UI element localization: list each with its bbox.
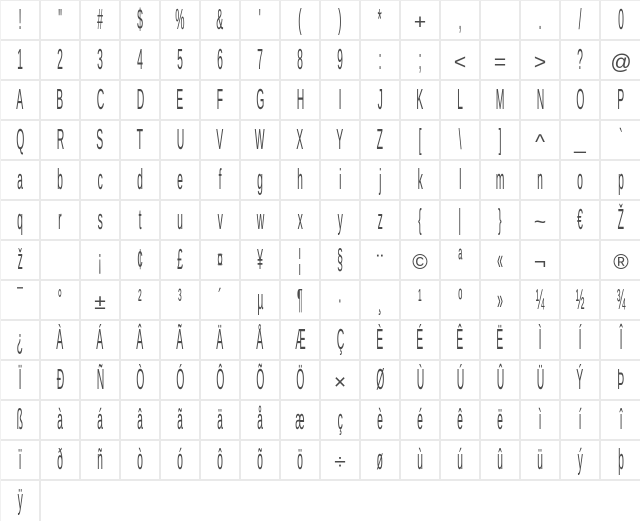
glyph-cell[interactable]: P	[601, 81, 640, 121]
glyph: ~	[534, 203, 546, 242]
glyph-cell[interactable]: ¾	[601, 281, 640, 321]
glyph: )	[338, 1, 341, 40]
glyph-cell[interactable]: ê	[441, 401, 481, 441]
glyph-cell[interactable]: ô	[201, 441, 241, 481]
glyph-cell[interactable]: æ	[281, 401, 321, 441]
glyph: §	[337, 241, 343, 280]
glyph-cell[interactable]: û	[481, 441, 521, 481]
glyph: P	[618, 81, 625, 120]
glyph: þ	[618, 441, 624, 480]
glyph: á	[97, 401, 103, 440]
glyph: ª	[458, 241, 462, 280]
glyph-cell[interactable]: J	[361, 81, 401, 121]
glyph-cell[interactable]: c	[81, 161, 121, 201]
glyph: û	[497, 441, 503, 480]
glyph-cell[interactable]: d	[121, 161, 161, 201]
glyph-cell[interactable]: Ð	[41, 361, 81, 401]
glyph-cell[interactable]: ö	[281, 441, 321, 481]
glyph-cell[interactable]: Û	[481, 361, 521, 401]
empty-cell	[281, 481, 321, 521]
glyph-cell[interactable]: ¿	[1, 321, 41, 361]
glyph-cell[interactable]: %	[161, 1, 201, 41]
glyph: ¦	[299, 241, 302, 280]
glyph-cell[interactable]: ¢	[121, 241, 161, 281]
glyph-cell[interactable]: é	[401, 401, 441, 441]
glyph-cell[interactable]: 7	[241, 41, 281, 81]
glyph-cell[interactable]: á	[81, 401, 121, 441]
glyph-cell[interactable]: ÷	[321, 441, 361, 481]
glyph-cell[interactable]: ¤	[201, 241, 241, 281]
glyph: c	[97, 161, 102, 200]
glyph: ß	[17, 401, 23, 440]
glyph-cell[interactable]: 0	[601, 1, 640, 41]
glyph-cell[interactable]: T	[121, 121, 161, 161]
glyph-cell[interactable]: \	[441, 121, 481, 161]
glyph-cell[interactable]: E	[161, 81, 201, 121]
glyph-cell[interactable]: 4	[121, 41, 161, 81]
glyph-cell[interactable]: b	[41, 161, 81, 201]
glyph: r	[58, 201, 61, 240]
glyph-cell[interactable]: ä	[201, 401, 241, 441]
glyph: I	[339, 81, 342, 120]
glyph-cell[interactable]: å	[241, 401, 281, 441]
glyph-cell[interactable]: y	[321, 201, 361, 241]
glyph-cell[interactable]: K	[401, 81, 441, 121]
glyph-cell[interactable]: !	[1, 1, 41, 41]
glyph-cell[interactable]: w	[241, 201, 281, 241]
glyph: {	[418, 201, 421, 240]
glyph: s	[97, 201, 102, 240]
glyph: 7	[257, 41, 263, 80]
glyph-cell[interactable]: ×	[321, 361, 361, 401]
glyph-cell[interactable]: «	[481, 241, 521, 281]
glyph-cell[interactable]: Ã	[161, 321, 201, 361]
glyph: ¥	[257, 241, 263, 280]
glyph-cell[interactable]: 2	[41, 41, 81, 81]
glyph: E	[177, 81, 184, 120]
glyph-cell[interactable]: Ø	[361, 361, 401, 401]
glyph: &	[217, 1, 224, 40]
glyph-cell[interactable]: ß	[1, 401, 41, 441]
glyph-cell[interactable]: Y	[321, 121, 361, 161]
glyph: H	[296, 81, 304, 120]
glyph: v	[217, 201, 222, 240]
glyph-cell[interactable]: è	[361, 401, 401, 441]
glyph-cell[interactable]: 5	[161, 41, 201, 81]
glyph: ,	[459, 1, 462, 40]
glyph: '	[259, 1, 261, 40]
glyph-cell[interactable]: 6	[201, 41, 241, 81]
glyph-cell[interactable]: ë	[481, 401, 521, 441]
glyph: ù	[417, 441, 423, 480]
glyph-cell[interactable]: O	[561, 81, 601, 121]
glyph-cell[interactable]: ¦	[281, 241, 321, 281]
glyph-cell[interactable]: ;	[401, 41, 441, 81]
glyph: Ë	[497, 321, 504, 360]
glyph-cell[interactable]: x	[281, 201, 321, 241]
glyph-cell[interactable]: ø	[361, 441, 401, 481]
glyph-cell[interactable]: É	[401, 321, 441, 361]
glyph: ¡	[98, 241, 101, 280]
glyph-cell[interactable]: M	[481, 81, 521, 121]
glyph-cell[interactable]: Ì	[521, 321, 561, 361]
glyph-cell[interactable]: r	[41, 201, 81, 241]
glyph-cell[interactable]: X	[281, 121, 321, 161]
glyph-cell[interactable]: õ	[241, 441, 281, 481]
glyph-cell[interactable]: i	[321, 161, 361, 201]
glyph: $	[137, 1, 143, 40]
glyph-cell[interactable]: î	[601, 401, 640, 441]
glyph: Y	[337, 121, 344, 160]
glyph-cell[interactable]: Ä	[201, 321, 241, 361]
glyph-cell[interactable]: v	[201, 201, 241, 241]
glyph: @	[610, 43, 631, 82]
glyph: 2	[57, 41, 63, 80]
glyph-cell[interactable]: e	[161, 161, 201, 201]
glyph-cell[interactable]: F	[201, 81, 241, 121]
glyph: |	[459, 201, 462, 240]
glyph: Û	[496, 361, 504, 400]
glyph-cell[interactable]: 3	[81, 41, 121, 81]
glyph-cell[interactable]: +	[401, 1, 441, 41]
glyph-cell[interactable]: a	[1, 161, 41, 201]
glyph-cell[interactable]: ¯	[1, 281, 41, 321]
glyph: <	[454, 43, 466, 82]
glyph-cell[interactable]: À	[41, 321, 81, 361]
glyph: B	[57, 81, 64, 120]
glyph: T	[137, 121, 143, 160]
glyph: Ð	[56, 361, 64, 400]
glyph: ¹	[418, 281, 421, 320]
empty-cell	[241, 481, 281, 521]
glyph: Ù	[416, 361, 424, 400]
glyph-cell[interactable]: V	[201, 121, 241, 161]
glyph-cell[interactable]: ÿ	[1, 481, 41, 521]
glyph: +	[414, 3, 426, 42]
glyph: ²	[138, 281, 141, 320]
glyph-cell[interactable]: Í	[561, 321, 601, 361]
empty-cell	[161, 481, 201, 521]
glyph: »	[497, 281, 503, 320]
glyph-cell[interactable]: U	[161, 121, 201, 161]
glyph: Ú	[456, 361, 464, 400]
glyph-cell[interactable]: »	[481, 281, 521, 321]
glyph: ž	[17, 241, 22, 280]
glyph: ¤	[217, 241, 223, 280]
glyph-cell[interactable]: ©	[401, 241, 441, 281]
glyph-cell[interactable]: j	[361, 161, 401, 201]
glyph-cell[interactable]: &	[201, 1, 241, 41]
glyph-cell[interactable]: L	[441, 81, 481, 121]
glyph: A	[17, 81, 24, 120]
glyph-cell[interactable]: u	[161, 201, 201, 241]
empty-cell	[481, 1, 521, 41]
glyph: i	[339, 161, 341, 200]
glyph: ¨	[377, 243, 384, 282]
glyph-cell[interactable]: ¸	[361, 281, 401, 321]
glyph-cell[interactable]: {	[401, 201, 441, 241]
glyph: È	[377, 321, 384, 360]
glyph-cell[interactable]: z	[361, 201, 401, 241]
glyph-cell[interactable]: £	[161, 241, 201, 281]
glyph-cell[interactable]: Ç	[321, 321, 361, 361]
glyph-cell[interactable]: ~	[521, 201, 561, 241]
glyph-cell[interactable]: D	[121, 81, 161, 121]
glyph-cell[interactable]: ^	[521, 121, 561, 161]
glyph: y	[337, 201, 342, 240]
glyph-cell[interactable]: ®	[601, 241, 640, 281]
glyph-cell[interactable]: ·	[321, 281, 361, 321]
glyph-cell[interactable]: Ü	[521, 361, 561, 401]
glyph: â	[137, 401, 143, 440]
glyph: 6	[217, 41, 223, 80]
glyph: ë	[497, 401, 503, 440]
glyph-cell[interactable]: ñ	[81, 441, 121, 481]
glyph-cell[interactable]: ú	[441, 441, 481, 481]
glyph-cell[interactable]: B	[41, 81, 81, 121]
glyph-cell[interactable]: ²	[121, 281, 161, 321]
glyph: ±	[94, 283, 106, 322]
glyph-cell[interactable]: Ë	[481, 321, 521, 361]
glyph-cell[interactable]: Î	[601, 321, 640, 361]
glyph: 8	[297, 41, 303, 80]
glyph: ¯	[17, 281, 23, 320]
glyph-cell[interactable]: ½	[561, 281, 601, 321]
glyph: u	[177, 201, 183, 240]
glyph-cell[interactable]: µ	[241, 281, 281, 321]
glyph-cell[interactable]: °	[41, 281, 81, 321]
glyph: é	[417, 401, 423, 440]
glyph-cell[interactable]: ¹	[401, 281, 441, 321]
glyph: £	[177, 241, 183, 280]
glyph-cell[interactable]: ]	[481, 121, 521, 161]
glyph-cell[interactable]: "	[41, 1, 81, 41]
glyph-cell[interactable]: ³	[161, 281, 201, 321]
glyph: ï	[19, 441, 22, 480]
glyph: 3	[97, 41, 103, 80]
glyph-cell[interactable]: f	[201, 161, 241, 201]
glyph: Ò	[136, 361, 144, 400]
glyph: D	[136, 81, 144, 120]
glyph-cell[interactable]: È	[361, 321, 401, 361]
glyph-cell[interactable]: ¶	[281, 281, 321, 321]
glyph-cell[interactable]: Ï	[1, 361, 41, 401]
empty-cell	[121, 481, 161, 521]
glyph: X	[297, 121, 304, 160]
glyph-cell[interactable]: º	[441, 281, 481, 321]
glyph-cell[interactable]: [	[401, 121, 441, 161]
glyph-cell[interactable]: 9	[321, 41, 361, 81]
glyph-cell[interactable]: =	[481, 41, 521, 81]
glyph-cell[interactable]: `	[601, 121, 640, 161]
glyph-cell[interactable]: (	[281, 1, 321, 41]
glyph-cell[interactable]: A	[1, 81, 41, 121]
glyph: "	[58, 1, 62, 40]
glyph-cell[interactable]: ç	[321, 401, 361, 441]
glyph: ì	[539, 401, 542, 440]
glyph: ©	[412, 243, 427, 282]
glyph-cell[interactable]: §	[321, 241, 361, 281]
glyph-cell[interactable]: ý	[561, 441, 601, 481]
glyph-cell[interactable]: g	[241, 161, 281, 201]
glyph-cell[interactable]: ¡	[81, 241, 121, 281]
glyph-cell[interactable]: l	[441, 161, 481, 201]
glyph-cell[interactable]: Ñ	[81, 361, 121, 401]
glyph: «	[497, 241, 503, 280]
glyph-cell[interactable]: @	[601, 41, 640, 81]
glyph-cell[interactable]: ó	[161, 441, 201, 481]
glyph: ã	[177, 401, 183, 440]
glyph: ×	[334, 363, 346, 402]
glyph-cell[interactable]: ž	[1, 241, 41, 281]
glyph-cell[interactable]: C	[81, 81, 121, 121]
glyph-cell[interactable]: í	[561, 401, 601, 441]
glyph-cell[interactable]: Â	[121, 321, 161, 361]
empty-cell	[601, 481, 640, 521]
glyph: ø	[377, 441, 383, 480]
glyph-cell[interactable]: â	[121, 401, 161, 441]
glyph-cell[interactable]: Æ	[281, 321, 321, 361]
glyph-cell[interactable]: Å	[241, 321, 281, 361]
glyph-cell[interactable]: Ž	[601, 201, 640, 241]
glyph-cell[interactable]: ¬	[521, 241, 561, 281]
glyph: 4	[137, 41, 143, 80]
glyph: ÷	[334, 443, 346, 482]
glyph: Ó	[176, 361, 184, 400]
glyph-cell[interactable]: m	[481, 161, 521, 201]
glyph-cell[interactable]: '	[241, 1, 281, 41]
glyph-cell[interactable]: þ	[601, 441, 640, 481]
glyph-cell[interactable]: Ý	[561, 361, 601, 401]
glyph-cell[interactable]: t	[121, 201, 161, 241]
glyph-cell[interactable]: Á	[81, 321, 121, 361]
glyph: Ø	[376, 361, 384, 400]
glyph: .	[539, 1, 542, 40]
glyph: ú	[457, 441, 463, 480]
glyph-cell[interactable]: <	[441, 41, 481, 81]
glyph: W	[255, 121, 265, 160]
glyph: q	[17, 201, 23, 240]
glyph-cell[interactable]: Ê	[441, 321, 481, 361]
glyph-cell[interactable]: Õ	[241, 361, 281, 401]
glyph: Ï	[19, 361, 22, 400]
glyph: ð	[57, 441, 63, 480]
glyph-cell[interactable]: q	[1, 201, 41, 241]
glyph: Á	[97, 321, 104, 360]
glyph-cell[interactable]: ¨	[361, 241, 401, 281]
glyph: ·	[338, 281, 341, 320]
glyph: f	[219, 161, 222, 200]
glyph-cell[interactable]: Ú	[441, 361, 481, 401]
glyph-cell[interactable]: Q	[1, 121, 41, 161]
glyph-cell[interactable]: ì	[521, 401, 561, 441]
glyph-cell[interactable]: Þ	[601, 361, 640, 401]
glyph-cell[interactable]: N	[521, 81, 561, 121]
glyph-cell[interactable]: à	[41, 401, 81, 441]
glyph-cell[interactable]: k	[401, 161, 441, 201]
glyph: K	[417, 81, 424, 120]
glyph-grid: !"#$%&'()*+,./0123456789:;<=>?@ABCDEFGHI…	[0, 0, 640, 521]
glyph-cell[interactable]: s	[81, 201, 121, 241]
glyph-cell[interactable]: _	[561, 121, 601, 161]
glyph-cell[interactable]: *	[361, 1, 401, 41]
glyph: Ä	[217, 321, 224, 360]
glyph: °	[58, 281, 62, 320]
glyph-cell[interactable]: €	[561, 201, 601, 241]
glyph: ;	[419, 41, 422, 80]
glyph-cell[interactable]: H	[281, 81, 321, 121]
glyph-cell[interactable]: ò	[121, 441, 161, 481]
glyph: ½	[576, 281, 585, 320]
glyph-cell[interactable]: ü	[521, 441, 561, 481]
glyph: ä	[217, 401, 223, 440]
glyph-cell[interactable]: ï	[1, 441, 41, 481]
glyph-cell[interactable]: 8	[281, 41, 321, 81]
glyph: S	[97, 121, 104, 160]
glyph-cell[interactable]: I	[321, 81, 361, 121]
glyph-cell[interactable]: >	[521, 41, 561, 81]
glyph-cell[interactable]: ,	[441, 1, 481, 41]
glyph-cell[interactable]: }	[481, 201, 521, 241]
glyph: À	[57, 321, 64, 360]
glyph: ¾	[617, 281, 626, 320]
glyph-cell[interactable]: Z	[361, 121, 401, 161]
glyph: Q	[16, 121, 24, 160]
glyph-cell[interactable]: ±	[81, 281, 121, 321]
glyph-cell[interactable]: R	[41, 121, 81, 161]
glyph-cell[interactable]: Ô	[201, 361, 241, 401]
glyph-cell[interactable]: Ò	[121, 361, 161, 401]
empty-cell	[441, 481, 481, 521]
glyph-cell[interactable]: ã	[161, 401, 201, 441]
glyph-cell[interactable]: )	[321, 1, 361, 41]
glyph-cell[interactable]: h	[281, 161, 321, 201]
glyph-cell[interactable]: |	[441, 201, 481, 241]
glyph-cell[interactable]: ´	[201, 281, 241, 321]
glyph-cell[interactable]: S	[81, 121, 121, 161]
glyph-cell[interactable]: 1	[1, 41, 41, 81]
glyph-cell[interactable]: /	[561, 1, 601, 41]
glyph-cell[interactable]: .	[521, 1, 561, 41]
glyph-cell[interactable]: n	[521, 161, 561, 201]
glyph: ó	[177, 441, 183, 480]
empty-cell	[321, 481, 361, 521]
glyph: :	[379, 41, 382, 80]
glyph-cell[interactable]: :	[361, 41, 401, 81]
glyph-cell[interactable]: ?	[561, 41, 601, 81]
glyph-cell[interactable]: W	[241, 121, 281, 161]
glyph-cell[interactable]: ð	[41, 441, 81, 481]
glyph-cell[interactable]: Ö	[281, 361, 321, 401]
glyph: n	[537, 161, 543, 200]
glyph: g	[257, 161, 263, 200]
glyph-cell[interactable]: Ù	[401, 361, 441, 401]
glyph: æ	[295, 401, 304, 440]
glyph-cell[interactable]: #	[81, 1, 121, 41]
glyph-cell[interactable]: p	[601, 161, 640, 201]
glyph-cell[interactable]: ª	[441, 241, 481, 281]
glyph-cell[interactable]: ¥	[241, 241, 281, 281]
glyph-cell[interactable]: G	[241, 81, 281, 121]
glyph-cell[interactable]: Ó	[161, 361, 201, 401]
glyph-cell[interactable]: o	[561, 161, 601, 201]
glyph-cell[interactable]: $	[121, 1, 161, 41]
glyph: ¿	[17, 321, 23, 360]
glyph-cell[interactable]: ¼	[521, 281, 561, 321]
glyph-cell[interactable]: ù	[401, 441, 441, 481]
glyph: ñ	[97, 441, 103, 480]
glyph: Ž	[618, 201, 624, 240]
